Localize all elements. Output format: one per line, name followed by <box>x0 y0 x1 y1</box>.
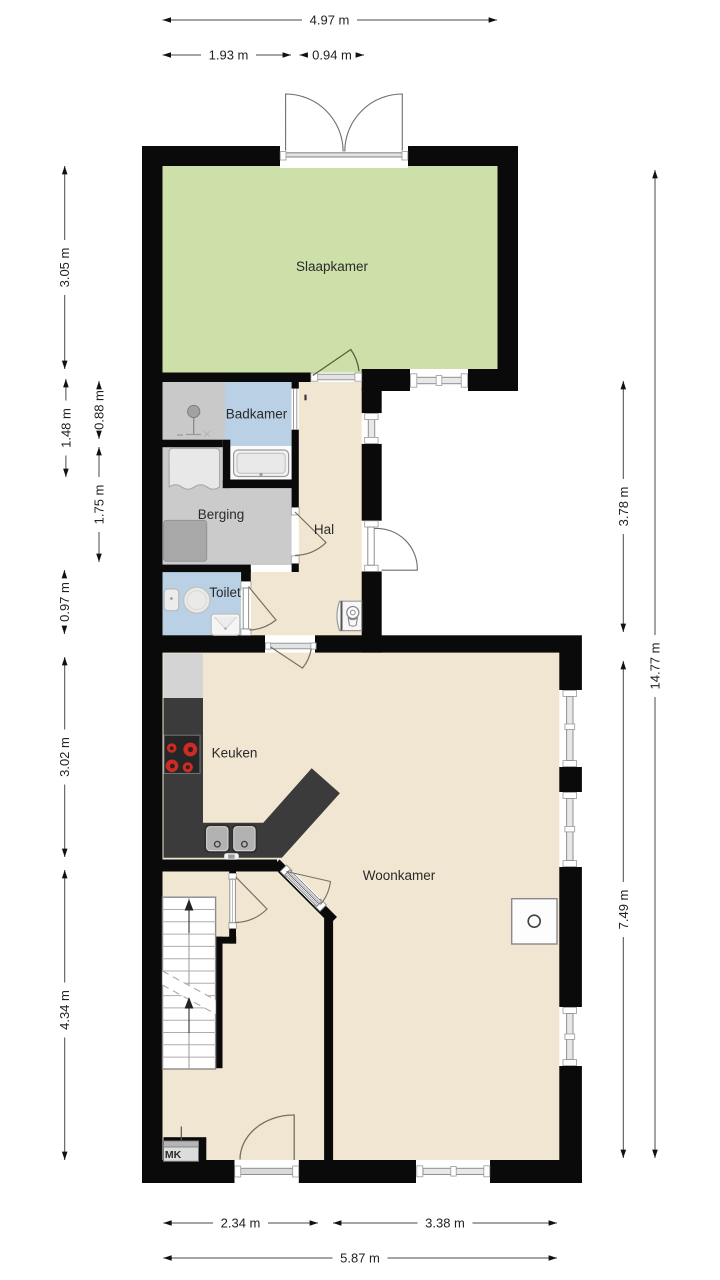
svg-text:Badkamer: Badkamer <box>226 407 288 422</box>
svg-text:1.48 m: 1.48 m <box>58 408 73 448</box>
svg-text:0.94 m: 0.94 m <box>312 48 352 63</box>
svg-text:4.34 m: 4.34 m <box>57 990 72 1030</box>
svg-text:Woonkamer: Woonkamer <box>363 868 436 883</box>
svg-text:14.77 m: 14.77 m <box>648 643 663 690</box>
svg-text:3.78 m: 3.78 m <box>616 487 631 527</box>
svg-text:4.97 m: 4.97 m <box>310 13 350 28</box>
svg-text:Berging: Berging <box>198 507 245 522</box>
svg-text:1.93 m: 1.93 m <box>209 48 249 63</box>
svg-text:Toilet: Toilet <box>209 585 241 600</box>
svg-text:1.75 m: 1.75 m <box>92 485 107 525</box>
svg-text:3.02 m: 3.02 m <box>57 737 72 777</box>
svg-text:0.88 m: 0.88 m <box>92 390 107 430</box>
svg-text:5.87 m: 5.87 m <box>340 1251 380 1266</box>
svg-text:Hal: Hal <box>314 522 334 537</box>
svg-text:3.38 m: 3.38 m <box>425 1216 465 1231</box>
svg-text:MK: MK <box>165 1149 182 1161</box>
svg-text:Keuken: Keuken <box>212 746 258 761</box>
svg-text:0.97 m: 0.97 m <box>57 582 72 622</box>
svg-text:Slaapkamer: Slaapkamer <box>296 259 369 274</box>
svg-text:7.49 m: 7.49 m <box>616 890 631 930</box>
svg-text:3.05 m: 3.05 m <box>57 248 72 288</box>
svg-text:2.34 m: 2.34 m <box>221 1216 261 1231</box>
